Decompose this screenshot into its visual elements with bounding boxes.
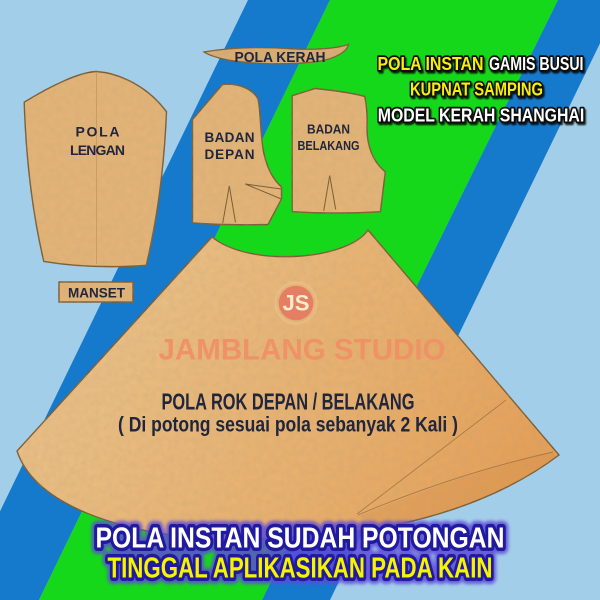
svg-text:BADAN: BADAN	[205, 130, 255, 145]
svg-text:DEPAN: DEPAN	[205, 147, 255, 162]
svg-text:TINGGAL APLIKASIKAN PADA KAIN: TINGGAL APLIKASIKAN PADA KAIN	[108, 553, 493, 585]
svg-text:JS: JS	[283, 291, 310, 316]
svg-text:POLA ROK DEPAN / BELAKANG: POLA ROK DEPAN / BELAKANG	[162, 389, 415, 415]
svg-text:LENGAN: LENGAN	[70, 142, 125, 158]
svg-text:JAMBLANG STUDIO: JAMBLANG STUDIO	[159, 334, 446, 367]
svg-text:POLA INSTAN: POLA INSTAN	[378, 54, 484, 74]
svg-text:( Di potong sesuai pola sebany: ( Di potong sesuai pola sebanyak 2 Kali …	[118, 414, 458, 437]
svg-text:MANSET: MANSET	[68, 285, 126, 300]
svg-text:BELAKANG: BELAKANG	[298, 138, 360, 153]
svg-text:KUPNAT SAMPING: KUPNAT SAMPING	[410, 80, 543, 100]
svg-text:MODEL KERAH SHANGHAI: MODEL KERAH SHANGHAI	[378, 105, 585, 125]
svg-text:POLA INSTAN SUDAH POTONGAN: POLA INSTAN SUDAH POTONGAN	[96, 523, 505, 555]
svg-text:BADAN: BADAN	[307, 122, 350, 137]
svg-text:GAMIS BUSUI: GAMIS BUSUI	[489, 54, 584, 74]
svg-text:POLA KERAH: POLA KERAH	[235, 50, 326, 66]
